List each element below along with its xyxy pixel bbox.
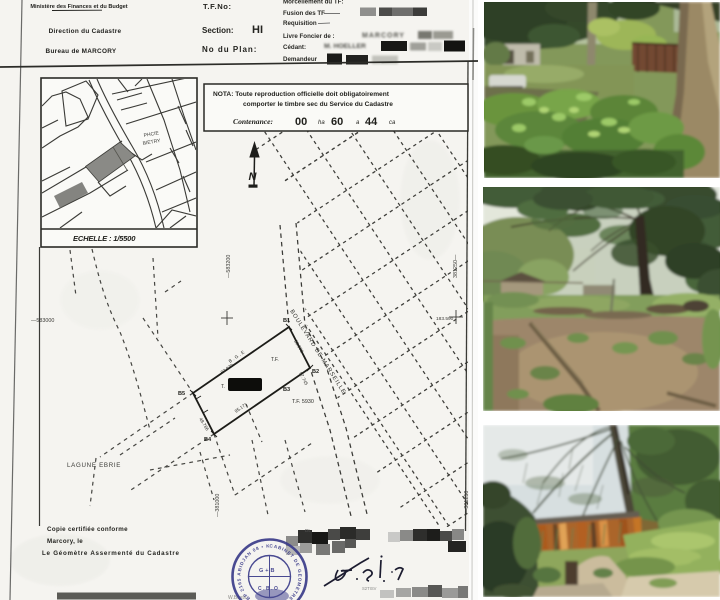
svg-text:183.590: 183.590 [436,316,454,322]
svg-text:Livre Foncier de :: Livre Foncier de : [283,33,335,40]
svg-text:Demandeur: Demandeur [283,56,318,63]
svg-text:NOTA: Toute reproduction offic: NOTA: Toute reproduction officielle doit… [213,91,390,98]
svg-text:Copie certifiée conforme: Copie certifiée conforme [47,526,128,533]
svg-text:ha: ha [318,120,325,126]
svg-text:381250—: 381250— [453,254,459,278]
svg-text:B1: B1 [283,318,290,324]
svg-text:60: 60 [331,116,343,128]
svg-text:G+B: G+B [259,568,276,574]
svg-text:No du Plan:: No du Plan: [202,45,257,54]
svg-text:B3: B3 [283,387,290,393]
svg-text:00: 00 [295,116,307,128]
svg-text:Le Géomètre Assermenté du Cada: Le Géomètre Assermenté du Cadastre [42,550,180,557]
svg-text:Requisition: Requisition [283,20,317,27]
svg-text:T.F.: T.F. [271,357,279,363]
svg-text:—381250: —381250 [464,491,470,514]
svg-text:Bureau de MARCORY: Bureau de MARCORY [46,48,117,55]
svg-text:Section:: Section: [202,26,234,35]
svg-text:HI: HI [252,24,263,36]
svg-text:Ministère des Finances et du B: Ministère des Finances et du Budget [30,4,127,10]
svg-text:T.F. 5930: T.F. 5930 [292,399,314,405]
svg-text:S2TISV: S2TISV [362,586,377,591]
svg-text:Marcory, le: Marcory, le [47,538,83,545]
svg-text:T.F.No:: T.F.No: [203,2,232,11]
svg-text:—583000: —583000 [31,318,54,324]
svg-text:—583200: —583200 [226,255,232,278]
svg-text:MARCORY: MARCORY [362,33,405,40]
svg-text:—381000: —381000 [215,494,221,517]
svg-text:Contenance:: Contenance: [233,117,273,126]
svg-text:T.: T. [221,384,225,390]
svg-text:Morcellement du TF:: Morcellement du TF: [283,0,344,6]
svg-text:B4: B4 [204,437,212,443]
svg-text:Fusion des TF: Fusion des TF [283,10,325,17]
svg-text:B2: B2 [312,369,319,375]
svg-text:ECHELLE : 1/5500: ECHELLE : 1/5500 [73,234,136,243]
svg-text:44: 44 [365,116,378,128]
svg-text:N: N [249,171,258,183]
svg-text:DL: DL [305,528,311,533]
svg-text:M. HOELLER: M. HOELLER [324,43,366,50]
svg-text:Direction du Cadastre: Direction du Cadastre [49,28,122,35]
svg-text:B5: B5 [178,391,185,397]
svg-text:ca: ca [389,120,396,126]
svg-text:comporter le timbre sec du Ser: comporter le timbre sec du Service du Ca… [243,101,393,108]
svg-text:LAGUNE EBRIE: LAGUNE EBRIE [67,462,121,469]
svg-text:Cédant:: Cédant: [283,44,306,51]
